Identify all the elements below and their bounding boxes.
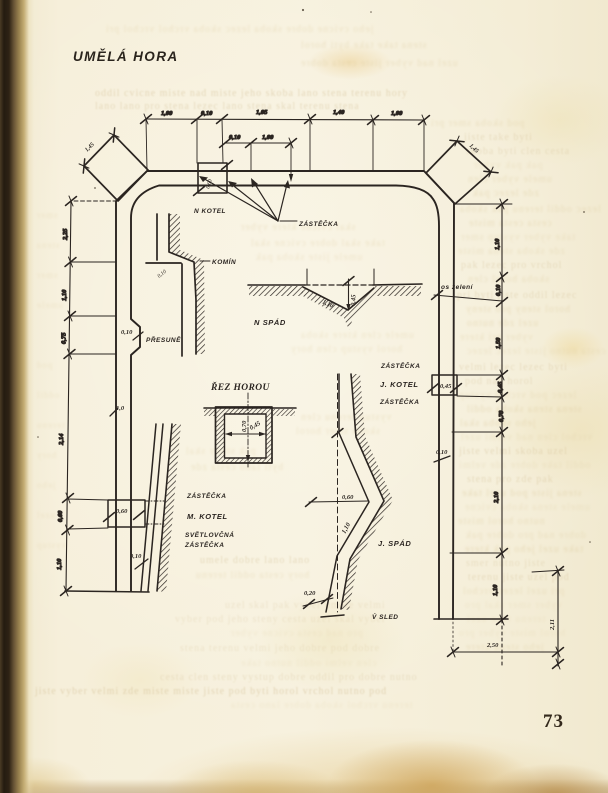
svg-text:0,10: 0,10 — [229, 134, 241, 141]
svg-text:J. SPÁD: J. SPÁD — [378, 539, 411, 548]
svg-text:M. KOTEL: M. KOTEL — [187, 512, 228, 521]
svg-text:ŘEZ HOROU: ŘEZ HOROU — [210, 381, 270, 393]
svg-text:N KOTEL: N KOTEL — [194, 208, 226, 215]
svg-text:KOMÍN: KOMÍN — [212, 257, 236, 266]
svg-text:ZÁSTĚČKA: ZÁSTĚČKA — [186, 491, 226, 500]
svg-text:2,14: 2,14 — [58, 433, 65, 446]
svg-text:SVĚTLOVČNÁ: SVĚTLOVČNÁ — [185, 530, 234, 539]
svg-text:0,45: 0,45 — [249, 420, 263, 432]
svg-text:0,60: 0,60 — [57, 510, 64, 522]
svg-text:0,10: 0,10 — [436, 449, 448, 456]
svg-text:0,10: 0,10 — [121, 329, 133, 336]
svg-text:V́ SLED: V́ SLED — [372, 612, 398, 621]
svg-text:J. KOTEL: J. KOTEL — [380, 380, 419, 389]
svg-text:0,45: 0,45 — [497, 381, 504, 393]
svg-text:0,75: 0,75 — [61, 332, 68, 344]
svg-text:0,70: 0,70 — [241, 420, 248, 432]
svg-text:0,60: 0,60 — [342, 494, 354, 501]
svg-text:PŘESUNĚ: PŘESUNĚ — [146, 335, 181, 344]
svg-text:ZÁSTĚČKA: ZÁSTĚČKA — [184, 540, 224, 549]
svg-text:0,20: 0,20 — [304, 590, 316, 597]
svg-text:N SPÁD: N SPÁD — [254, 318, 286, 327]
svg-text:os zelení: os zelení — [441, 284, 474, 291]
svg-text:1,45: 1,45 — [84, 142, 96, 154]
svg-text:1,00: 1,00 — [161, 110, 173, 117]
svg-text:ZÁSTĚČKA: ZÁSTĚČKA — [298, 219, 338, 228]
svg-text:1,40: 1,40 — [333, 109, 345, 116]
svg-text:2,50: 2,50 — [486, 642, 499, 649]
svg-text:1,0: 1,0 — [116, 405, 125, 412]
svg-text:1,00: 1,00 — [262, 134, 274, 141]
svg-text:1,10: 1,10 — [56, 558, 63, 570]
svg-text:0,10: 0,10 — [201, 110, 213, 117]
svg-text:ZÁSTĚČKA: ZÁSTĚČKA — [380, 361, 420, 370]
svg-text:ZÁSTĚČKA: ZÁSTĚČKA — [379, 397, 419, 406]
svg-text:2,10: 2,10 — [493, 491, 500, 504]
svg-text:1,10: 1,10 — [492, 584, 499, 596]
svg-text:2,11: 2,11 — [549, 619, 556, 631]
svg-text:1,50: 1,50 — [495, 337, 502, 349]
svg-text:1,00: 1,00 — [391, 110, 403, 117]
svg-text:1,10: 1,10 — [494, 238, 501, 250]
svg-text:0,45: 0,45 — [350, 294, 358, 306]
svg-text:0,10: 0,10 — [130, 553, 142, 560]
svg-text:0,70: 0,70 — [498, 410, 505, 422]
svg-text:0,45: 0,45 — [440, 383, 452, 390]
svg-text:1,10: 1,10 — [61, 289, 68, 301]
svg-text:0,10: 0,10 — [157, 269, 168, 280]
svg-text:0,10: 0,10 — [495, 284, 502, 296]
svg-text:1,05: 1,05 — [256, 109, 268, 116]
svg-text:2,25: 2,25 — [62, 228, 69, 241]
svg-text:0,60: 0,60 — [116, 508, 128, 515]
